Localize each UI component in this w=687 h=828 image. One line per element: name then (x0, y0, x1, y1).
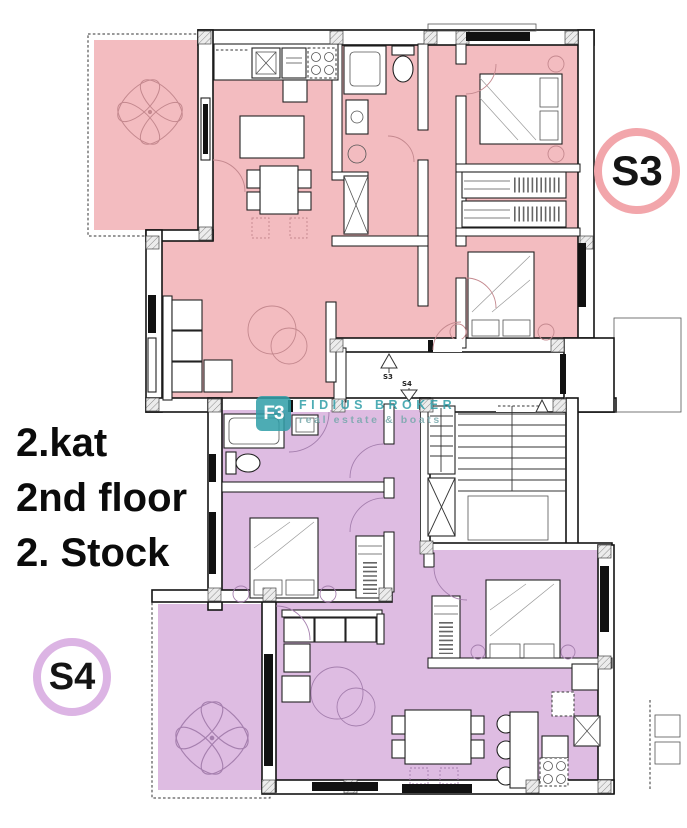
floor-label-floor: 2nd floor (16, 471, 187, 526)
unit-badge-s3: S3 (594, 128, 680, 214)
unit-badge-s4-label: S4 (49, 656, 95, 699)
unit-badge-s4: S4 (33, 638, 111, 716)
neighbor-balcony (650, 700, 680, 790)
s4-terrace (152, 598, 270, 798)
corridor-up-label: S3 (383, 373, 393, 381)
broker-logo-icon: F3 (256, 396, 291, 431)
floor-labels: 2.kat 2nd floor 2. Stock (16, 416, 187, 581)
fridge-icon (552, 692, 574, 716)
floor-label-kat: 2.kat (16, 416, 187, 471)
watermark: F3 FIDIUS BROKER real estate & boats (256, 396, 456, 431)
stairs-steps (458, 406, 566, 540)
corridor-down-label: S4 (402, 380, 412, 388)
unit-badge-s3-label: S3 (611, 147, 662, 195)
watermark-title: FIDIUS BROKER (299, 398, 456, 412)
floor-label-stock: 2. Stock (16, 526, 187, 581)
watermark-subtitle: real estate & boats (299, 414, 456, 426)
apartment-s3 (88, 30, 616, 412)
watermark-text: FIDIUS BROKER real estate & boats (299, 396, 456, 431)
floorplan-page: S3 S4 (0, 0, 687, 828)
corridor-arrows: S3 S4 (381, 354, 417, 401)
stairwell: S3 S4 (381, 318, 681, 553)
s3-terrace (88, 34, 212, 236)
